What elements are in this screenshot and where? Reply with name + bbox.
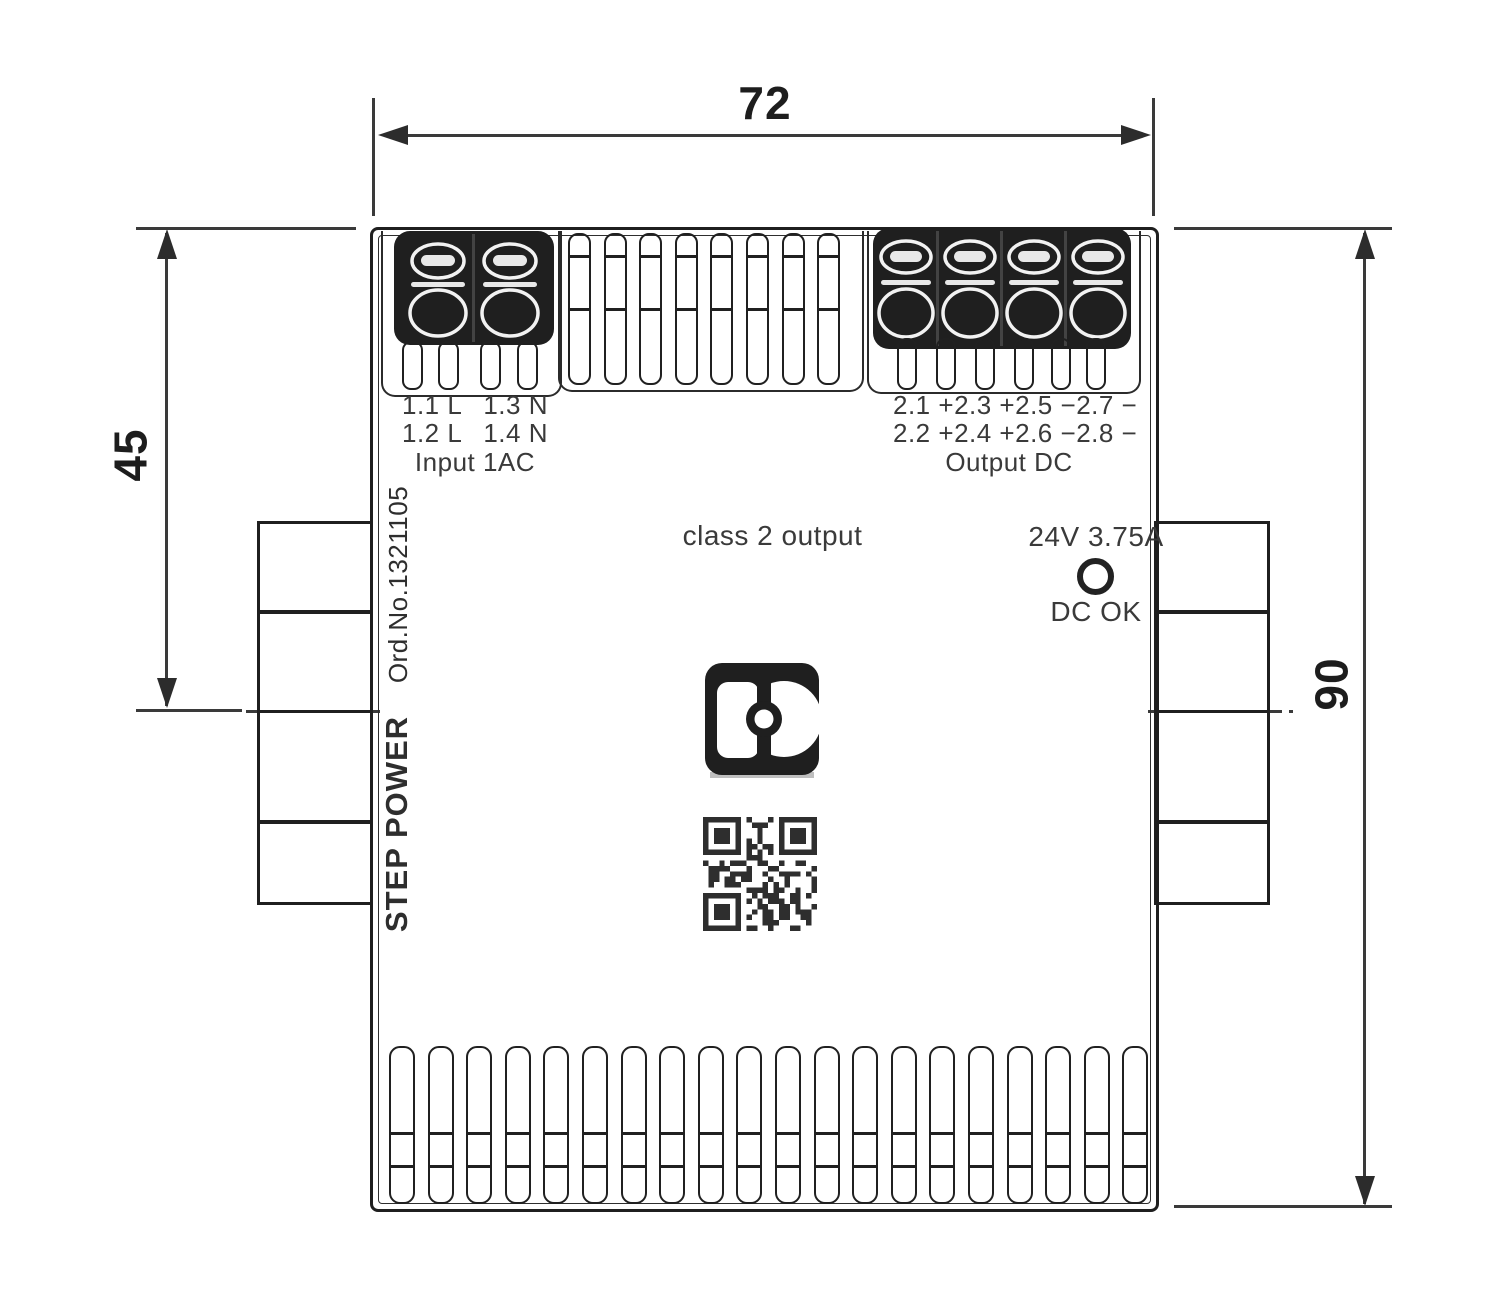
vent-slot bbox=[568, 233, 591, 385]
vent-slot bbox=[389, 1046, 415, 1204]
dimension-height-value: 90 bbox=[1300, 648, 1364, 720]
arrowhead-down-icon bbox=[1355, 1176, 1375, 1206]
output-terminal-block bbox=[871, 226, 1133, 353]
technical-drawing-canvas: 72 45 90 bbox=[0, 0, 1500, 1289]
vent-slot bbox=[505, 1046, 531, 1204]
terminal-label: 2.2 + bbox=[893, 419, 954, 447]
dimension-upper-height-value: 45 bbox=[96, 418, 166, 492]
class-marking: class 2 output bbox=[640, 520, 905, 552]
dimension-height-line bbox=[1363, 233, 1366, 1204]
extension-line bbox=[136, 709, 242, 712]
input-terminal-labels: 1.1 L 1.3 N 1.2 L 1.4 N Input 1AC bbox=[402, 391, 548, 476]
vent-slot bbox=[746, 233, 769, 385]
dimension-upper-line bbox=[165, 233, 168, 706]
dimension-width-line bbox=[392, 134, 1140, 137]
extension-line bbox=[1174, 227, 1392, 230]
din-tab-left bbox=[257, 521, 373, 905]
vent-slot bbox=[710, 233, 733, 385]
vent-slot bbox=[698, 1046, 724, 1204]
terminal-label: 2.4 + bbox=[954, 419, 1015, 447]
tab-divider bbox=[1156, 610, 1268, 614]
vent-slot bbox=[402, 341, 423, 390]
tab-divider bbox=[259, 820, 371, 824]
vent-slot bbox=[517, 341, 538, 390]
vent-slot bbox=[1051, 338, 1071, 390]
phoenix-contact-logo-icon bbox=[704, 662, 820, 780]
terminal-label: 1.3 N bbox=[483, 391, 548, 419]
qr-code-icon bbox=[703, 817, 817, 931]
input-terminal-block bbox=[392, 229, 556, 349]
vent-slot bbox=[975, 338, 995, 390]
terminal-label: 1.1 L bbox=[402, 391, 462, 419]
vent-slot bbox=[1007, 1046, 1033, 1204]
terminal-label: 2.7 − bbox=[1076, 391, 1137, 419]
extension-line bbox=[1174, 1205, 1392, 1208]
vent-slot bbox=[775, 1046, 801, 1204]
arrowhead-left-icon bbox=[378, 125, 408, 145]
terminal-label: 2.8 − bbox=[1076, 419, 1137, 447]
vent-slot bbox=[1122, 1046, 1148, 1204]
vent-slot bbox=[782, 233, 805, 385]
tab-divider bbox=[259, 710, 371, 713]
output-caption: Output DC bbox=[893, 448, 1125, 476]
vent-slot bbox=[675, 233, 698, 385]
arrowhead-down-icon bbox=[157, 678, 177, 708]
vent-slot bbox=[968, 1046, 994, 1204]
tab-divider bbox=[259, 610, 371, 614]
vent-slot bbox=[543, 1046, 569, 1204]
arrowhead-right-icon bbox=[1121, 125, 1151, 145]
led-label: DC OK bbox=[1026, 596, 1166, 628]
vent-slot bbox=[639, 233, 662, 385]
terminal-label: 1.4 N bbox=[483, 419, 548, 447]
vent-slot bbox=[480, 341, 501, 390]
vent-slot bbox=[582, 1046, 608, 1204]
tab-divider bbox=[1156, 820, 1268, 824]
tab-divider bbox=[1156, 710, 1268, 713]
terminal-label: 2.5 − bbox=[1015, 391, 1076, 419]
vent-slot bbox=[1084, 1046, 1110, 1204]
vent-slot bbox=[736, 1046, 762, 1204]
extension-line bbox=[1152, 98, 1155, 216]
terminal-label: 2.1 + bbox=[893, 391, 954, 419]
vent-slot bbox=[1045, 1046, 1071, 1204]
vent-slot bbox=[852, 1046, 878, 1204]
vent-slot bbox=[814, 1046, 840, 1204]
vent-slot bbox=[891, 1046, 917, 1204]
dc-ok-led-icon bbox=[1077, 558, 1114, 595]
vent-slot bbox=[897, 338, 917, 390]
vent-slot bbox=[438, 341, 459, 390]
output-terminal-labels: 2.1 + 2.3 + 2.5 − 2.7 − 2.2 + 2.4 + 2.6 … bbox=[893, 391, 1125, 476]
vent-slot bbox=[466, 1046, 492, 1204]
order-number-marking: Ord.No.1321105 bbox=[384, 474, 414, 694]
vent-slot bbox=[604, 233, 627, 385]
terminal-label: 2.3 + bbox=[954, 391, 1015, 419]
vent-slot bbox=[621, 1046, 647, 1204]
terminal-label: 1.2 L bbox=[402, 419, 462, 447]
vent-slot bbox=[428, 1046, 454, 1204]
vent-slot bbox=[936, 338, 956, 390]
brand-marking: STEP POWER bbox=[380, 698, 414, 950]
vent-slot bbox=[1086, 338, 1106, 390]
vent-slot bbox=[659, 1046, 685, 1204]
din-tab-right bbox=[1154, 521, 1270, 905]
arrowhead-up-icon bbox=[157, 229, 177, 259]
arrowhead-up-icon bbox=[1355, 229, 1375, 259]
vent-slot bbox=[1014, 338, 1034, 390]
input-caption: Input 1AC bbox=[402, 448, 548, 476]
extension-line bbox=[136, 227, 356, 230]
extension-line bbox=[372, 98, 375, 216]
vent-slot bbox=[817, 233, 840, 385]
dimension-width-value: 72 bbox=[700, 76, 830, 130]
vent-slot bbox=[929, 1046, 955, 1204]
terminal-label: 2.6 − bbox=[1015, 419, 1076, 447]
rating-marking: 24V 3.75A bbox=[1010, 521, 1182, 553]
